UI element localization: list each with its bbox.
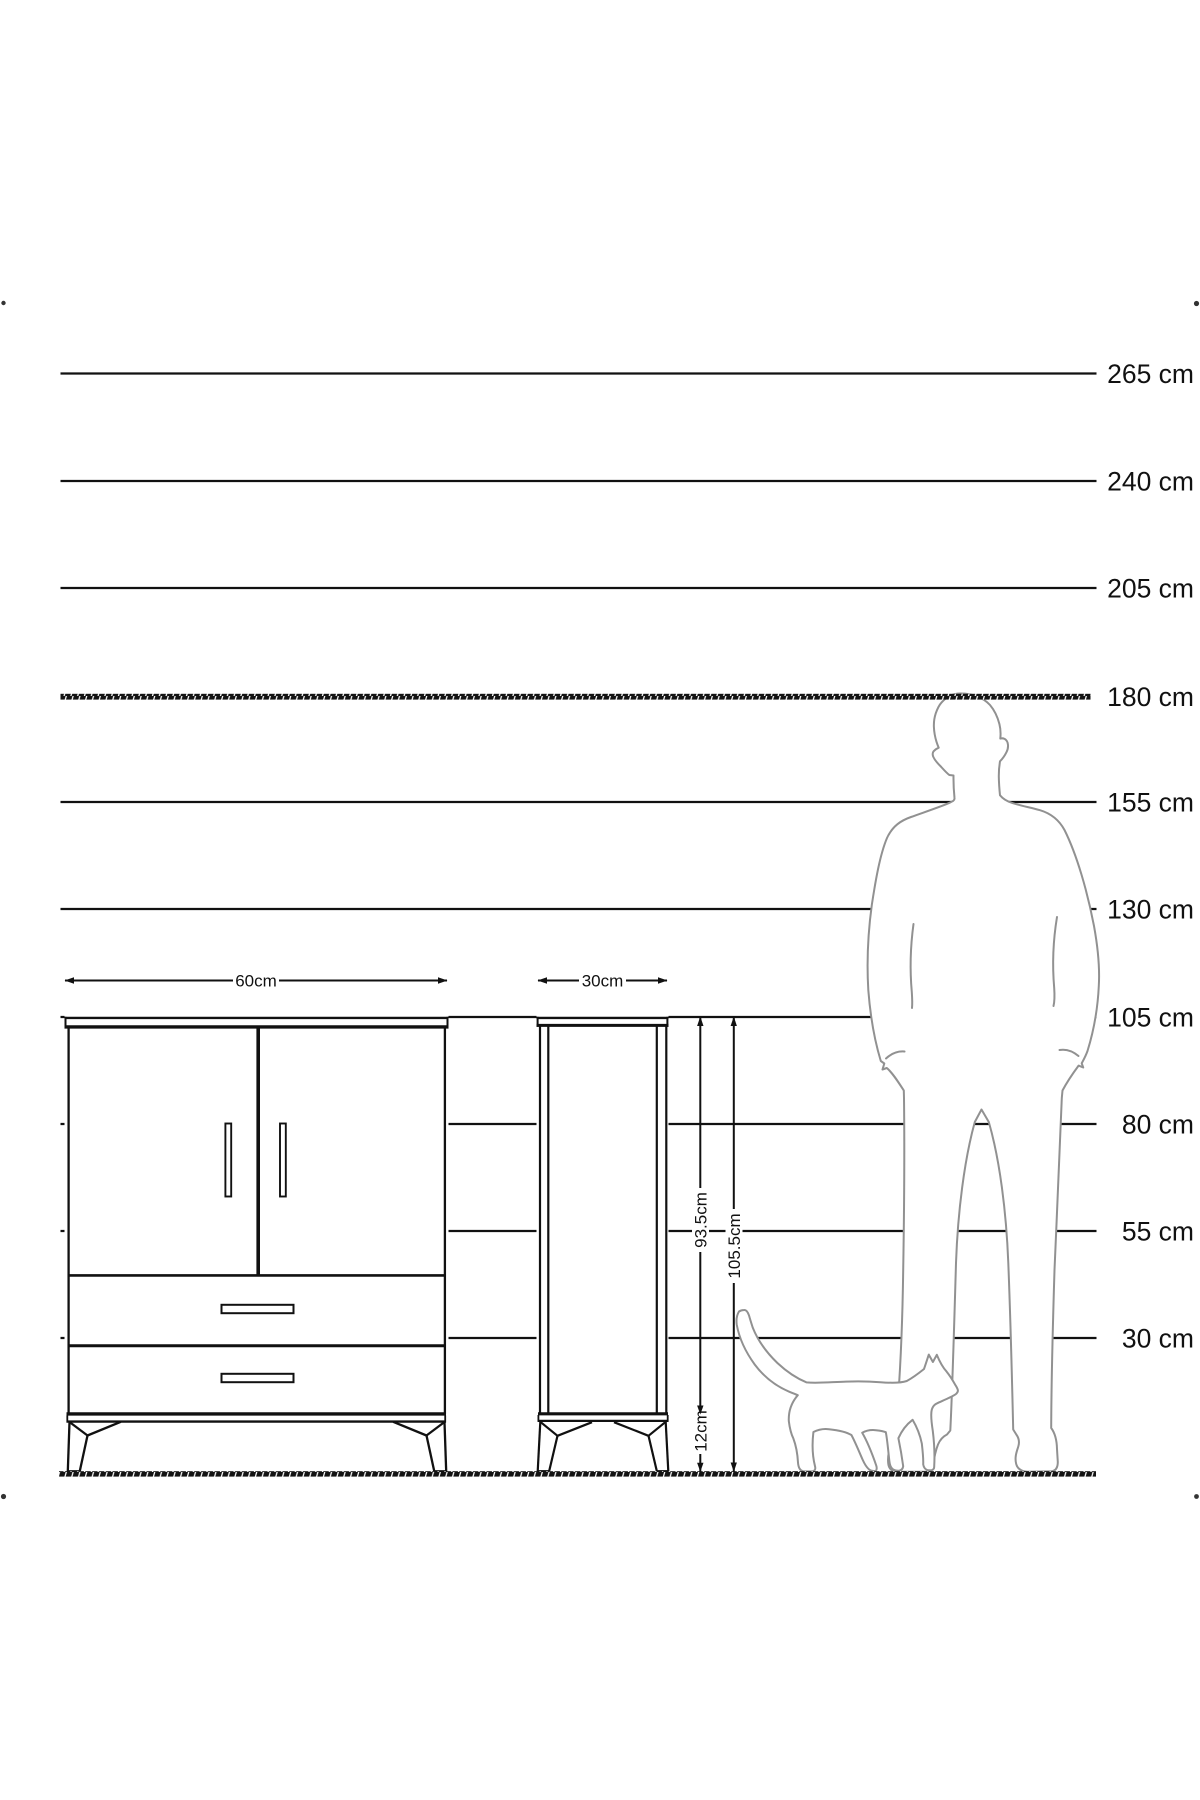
svg-text:205 cm: 205 cm bbox=[1107, 574, 1194, 604]
svg-text:265 cm: 265 cm bbox=[1107, 359, 1194, 389]
svg-text:30 cm: 30 cm bbox=[1122, 1324, 1194, 1354]
svg-text:105 cm: 105 cm bbox=[1107, 1003, 1194, 1033]
svg-text:80 cm: 80 cm bbox=[1122, 1110, 1194, 1140]
svg-text:180 cm: 180 cm bbox=[1107, 682, 1194, 712]
svg-text:12cm: 12cm bbox=[691, 1410, 710, 1452]
svg-text:155 cm: 155 cm bbox=[1107, 788, 1194, 818]
svg-text:55 cm: 55 cm bbox=[1122, 1217, 1194, 1247]
svg-text:105.5cm: 105.5cm bbox=[725, 1213, 744, 1278]
svg-text:30cm: 30cm bbox=[582, 972, 624, 991]
svg-text:240 cm: 240 cm bbox=[1107, 467, 1194, 497]
svg-text:60cm: 60cm bbox=[235, 972, 277, 991]
svg-text:130 cm: 130 cm bbox=[1107, 895, 1194, 925]
svg-text:93.5cm: 93.5cm bbox=[691, 1192, 710, 1248]
